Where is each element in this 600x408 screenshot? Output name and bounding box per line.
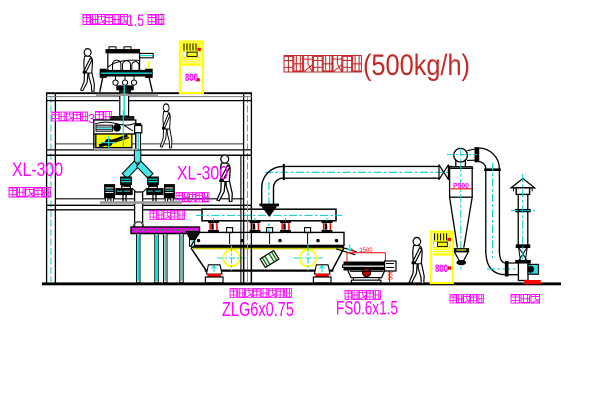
svg-text:1500: 1500 [360, 247, 373, 254]
svg-text:ZLG6x0.75: ZLG6x0.75 [222, 299, 294, 321]
svg-text:XL-300: XL-300 [177, 164, 228, 185]
svg-text:800: 800 [185, 72, 198, 84]
svg-text:(500kg/h): (500kg/h) [363, 49, 470, 82]
svg-text:FS0.6x1.5: FS0.6x1.5 [336, 299, 398, 320]
svg-text:XL-300: XL-300 [12, 160, 63, 181]
svg-text:1.5: 1.5 [127, 11, 144, 30]
svg-text:800: 800 [435, 263, 448, 275]
